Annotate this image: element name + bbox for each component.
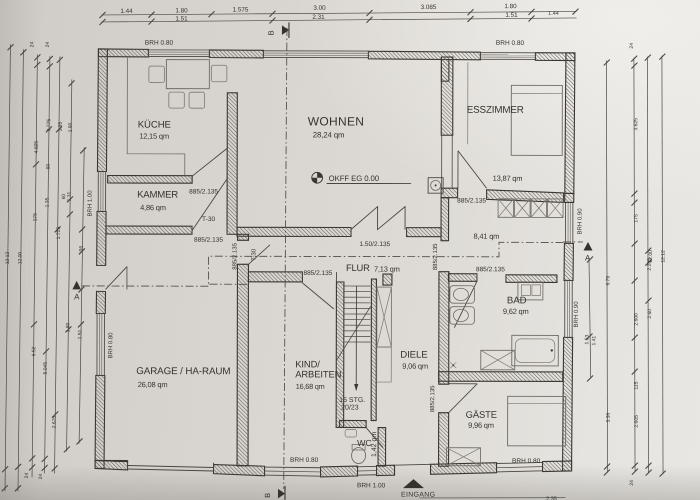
svg-text:KÜCHE: KÜCHE xyxy=(138,120,171,131)
svg-text:3.85: 3.85 xyxy=(58,121,64,131)
svg-text:BRH 1.00: BRH 1.00 xyxy=(357,482,386,489)
svg-text:24: 24 xyxy=(29,42,35,48)
svg-text:2.600: 2.600 xyxy=(633,313,639,326)
svg-text:BRH 1.00: BRH 1.00 xyxy=(88,190,94,217)
svg-text:A: A xyxy=(74,292,80,301)
svg-text:20/23: 20/23 xyxy=(341,404,359,411)
svg-text:1.44: 1.44 xyxy=(120,8,133,15)
svg-text:885/2.135: 885/2.135 xyxy=(430,385,436,412)
svg-text:BRH 0.80: BRH 0.80 xyxy=(290,457,319,464)
svg-text:90: 90 xyxy=(46,164,52,170)
svg-text:BRH 0.80: BRH 0.80 xyxy=(512,458,541,465)
svg-text:8,41 qm: 8,41 qm xyxy=(474,232,500,241)
svg-text:1.44: 1.44 xyxy=(548,11,559,17)
svg-text:EINGANG: EINGANG xyxy=(401,492,435,499)
svg-text:1,42 qm: 1,42 qm xyxy=(371,432,378,457)
svg-text:3.085: 3.085 xyxy=(421,4,437,11)
svg-text:24: 24 xyxy=(45,42,51,48)
svg-text:96: 96 xyxy=(78,246,84,252)
svg-text:26,08 qm: 26,08 qm xyxy=(138,380,168,389)
svg-text:BRH 0.90: BRH 0.90 xyxy=(578,208,584,235)
svg-text:24: 24 xyxy=(24,473,30,479)
svg-text:1.575: 1.575 xyxy=(233,7,249,14)
svg-text:15 STG.: 15 STG. xyxy=(339,397,365,404)
svg-text:24: 24 xyxy=(38,474,44,480)
svg-text:1.51: 1.51 xyxy=(175,16,188,23)
svg-text:28,24 qm: 28,24 qm xyxy=(313,130,345,139)
svg-text:WOHNEN: WOHNEN xyxy=(308,114,364,128)
svg-text:885/2.135: 885/2.135 xyxy=(189,188,218,195)
svg-text:6.52: 6.52 xyxy=(31,346,37,356)
svg-text:B: B xyxy=(266,30,275,35)
svg-text:885/2.135: 885/2.135 xyxy=(194,237,223,244)
svg-text:BRH 0.80: BRH 0.80 xyxy=(145,40,174,47)
svg-text:885/2.135: 885/2.135 xyxy=(433,243,439,270)
svg-text:GARAGE / HA-RAUM: GARAGE / HA-RAUM xyxy=(136,366,230,377)
svg-text:2.605: 2.605 xyxy=(634,415,640,428)
svg-text:2.675: 2.675 xyxy=(52,416,58,429)
svg-text:16,68 qm: 16,68 qm xyxy=(296,382,325,391)
svg-text:12,15 qm: 12,15 qm xyxy=(139,132,169,141)
svg-text:1.50/2.135: 1.50/2.135 xyxy=(360,241,391,248)
svg-text:2.35: 2.35 xyxy=(546,496,557,500)
svg-text:12.12: 12.12 xyxy=(5,252,11,265)
svg-text:KAMMER: KAMMER xyxy=(137,190,178,201)
svg-text:24: 24 xyxy=(629,43,635,49)
svg-text:1.80: 1.80 xyxy=(175,7,188,14)
svg-text:1.53: 1.53 xyxy=(584,335,590,345)
svg-text:12.00: 12.00 xyxy=(17,252,23,265)
svg-text:885/2.135: 885/2.135 xyxy=(232,242,238,269)
svg-text:6.79: 6.79 xyxy=(605,276,611,286)
svg-text:2.60: 2.60 xyxy=(647,309,653,319)
svg-text:2.31: 2.31 xyxy=(312,14,325,21)
svg-text:9,06 qm: 9,06 qm xyxy=(402,362,428,371)
svg-text:12.00: 12.00 xyxy=(648,250,654,263)
svg-text:1.90: 1.90 xyxy=(68,122,74,132)
svg-text:24: 24 xyxy=(629,480,635,486)
svg-text:1.80: 1.80 xyxy=(65,322,71,332)
svg-text:1.31: 1.31 xyxy=(67,191,73,201)
svg-text:GÄSTE: GÄSTE xyxy=(466,409,497,420)
svg-text:DIELE: DIELE xyxy=(400,350,427,361)
svg-text:BRH 0.90: BRH 0.90 xyxy=(574,301,580,328)
svg-text:BAD: BAD xyxy=(507,295,527,306)
svg-text:7,13 qm: 7,13 qm xyxy=(374,265,400,274)
svg-text:5.045: 5.045 xyxy=(43,362,49,375)
svg-text:1.80: 1.80 xyxy=(504,3,517,10)
svg-text:ARBEITEN: ARBEITEN xyxy=(295,368,341,379)
svg-text:BRH 0.80: BRH 0.80 xyxy=(108,332,114,359)
svg-text:115: 115 xyxy=(634,381,640,389)
svg-text:885/2.135: 885/2.135 xyxy=(303,270,332,277)
svg-text:1.51: 1.51 xyxy=(77,329,83,339)
svg-text:1.51: 1.51 xyxy=(505,12,518,19)
svg-text:BRH 0.80: BRH 0.80 xyxy=(496,40,525,47)
svg-text:ESSZIMMER: ESSZIMMER xyxy=(467,105,524,116)
svg-text:B: B xyxy=(263,493,272,498)
svg-text:T-30: T-30 xyxy=(202,216,215,223)
svg-text:9,96 qm: 9,96 qm xyxy=(468,421,494,430)
svg-text:13,87 qm: 13,87 qm xyxy=(493,174,523,183)
svg-text:4,86 qm: 4,86 qm xyxy=(140,203,166,212)
svg-text:175: 175 xyxy=(33,213,39,222)
svg-text:OKFF EG 0.00: OKFF EG 0.00 xyxy=(329,174,380,183)
svg-text:1.41: 1.41 xyxy=(591,336,597,346)
svg-text:9,62 qm: 9,62 qm xyxy=(503,307,529,316)
svg-text:12.12: 12.12 xyxy=(660,250,666,263)
svg-text:3.00: 3.00 xyxy=(313,5,326,12)
svg-text:175: 175 xyxy=(633,214,639,223)
svg-text:1.35: 1.35 xyxy=(45,197,51,207)
svg-text:T-30: T-30 xyxy=(251,248,257,261)
svg-text:3.625: 3.625 xyxy=(633,118,639,131)
svg-text:885/2.135: 885/2.135 xyxy=(457,198,486,205)
svg-text:885/2.135: 885/2.135 xyxy=(476,266,505,273)
svg-text:4.825: 4.825 xyxy=(34,141,40,154)
svg-text:3.775: 3.775 xyxy=(46,119,52,132)
svg-text:1.725: 1.725 xyxy=(56,227,62,240)
svg-text:3.36: 3.36 xyxy=(606,413,612,423)
svg-text:FLUR: FLUR xyxy=(346,262,370,273)
